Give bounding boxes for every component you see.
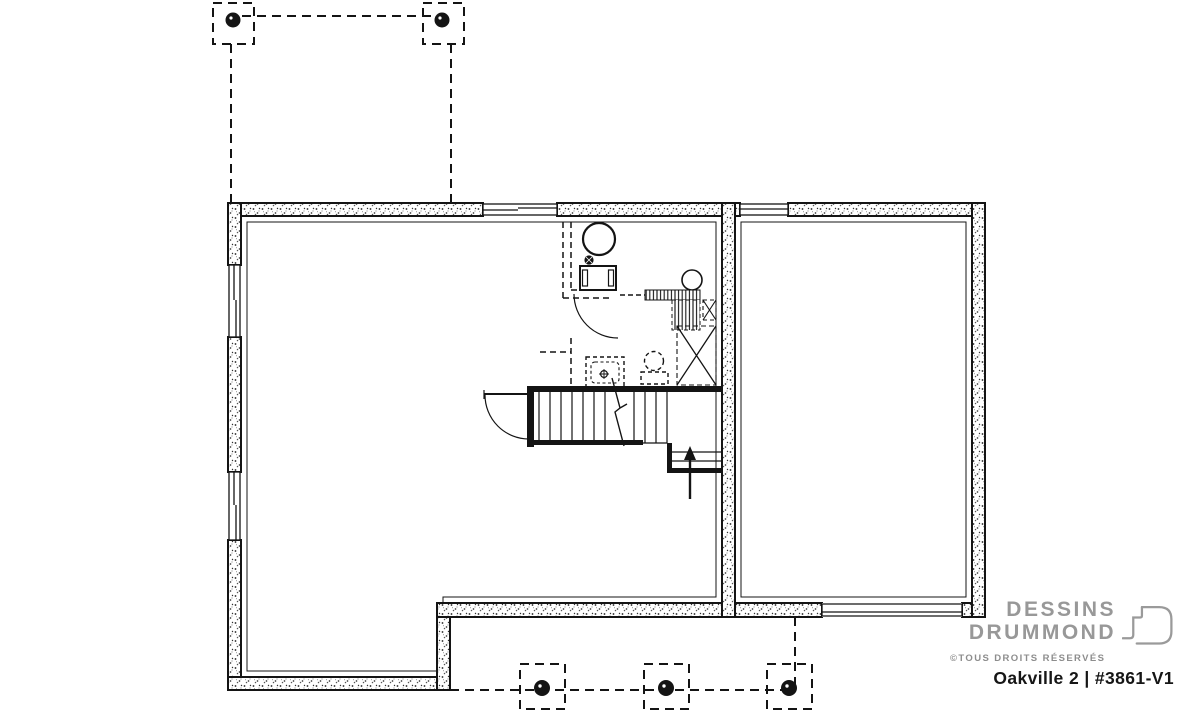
rights-notice: ©TOUS DROITS RÉSERVÉS [944,653,1105,664]
wall-bottom-left-room [228,677,450,690]
staircase [527,378,722,499]
future-bathroom-door-swing [574,294,618,338]
basement-door [484,390,529,439]
window-left-1 [229,265,240,337]
wall-interior-garage [722,203,735,617]
wall-left-2 [228,337,241,472]
logo-line2: DRUMMOND [969,621,1116,644]
title-block: DESSINS DRUMMOND ©TOUS DROITS RÉSERVÉS O… [944,598,1174,689]
future-shower-icon [586,357,624,387]
deck-pier-footings-top [213,3,464,203]
window-left-2 [229,472,240,540]
pier-post-icon [781,680,797,696]
pier-post-icon [658,680,674,696]
pier-post-icon [435,13,450,28]
stair-header-beam [528,386,722,392]
windows [229,204,788,540]
stair-lower-treads [672,443,722,468]
water-heater-icon [583,223,615,255]
logo-line1: DESSINS [969,598,1116,621]
wall-left-1 [228,203,241,265]
future-toilet-icon [641,352,668,385]
pier-post-icon [226,13,241,28]
drummond-d-mark-icon [1122,602,1174,652]
wall-left-3 [228,540,241,690]
window-top-1 [483,204,557,215]
wall-bottom-center [437,603,822,617]
chase-x-box [677,326,716,385]
garage-door-opening [822,603,962,617]
wall-top-left [228,203,483,216]
stair-lower-wall [667,443,672,471]
wall-top-garage [788,203,985,216]
floor-drain-icon [584,255,593,264]
window-top-2 [740,204,788,215]
stair-lower-rail [667,468,722,473]
future-lavatory-icon [682,270,702,290]
wall-top-mid [557,203,740,216]
hatched-header-bar [620,290,700,300]
small-x-box [703,300,716,320]
deck-pier-footings-bottom [450,617,812,709]
stair-treads [539,392,667,443]
mechanical-panel-icon [580,266,616,290]
wall-right-garage [972,203,985,617]
stair-bottom-rail [528,440,643,445]
pier-post-icon [534,680,550,696]
plan-title: Oakville 2 | #3861-V1 [993,668,1174,689]
stair-left-wall [527,386,534,447]
logo-wordmark: DESSINS DRUMMOND [969,598,1116,644]
